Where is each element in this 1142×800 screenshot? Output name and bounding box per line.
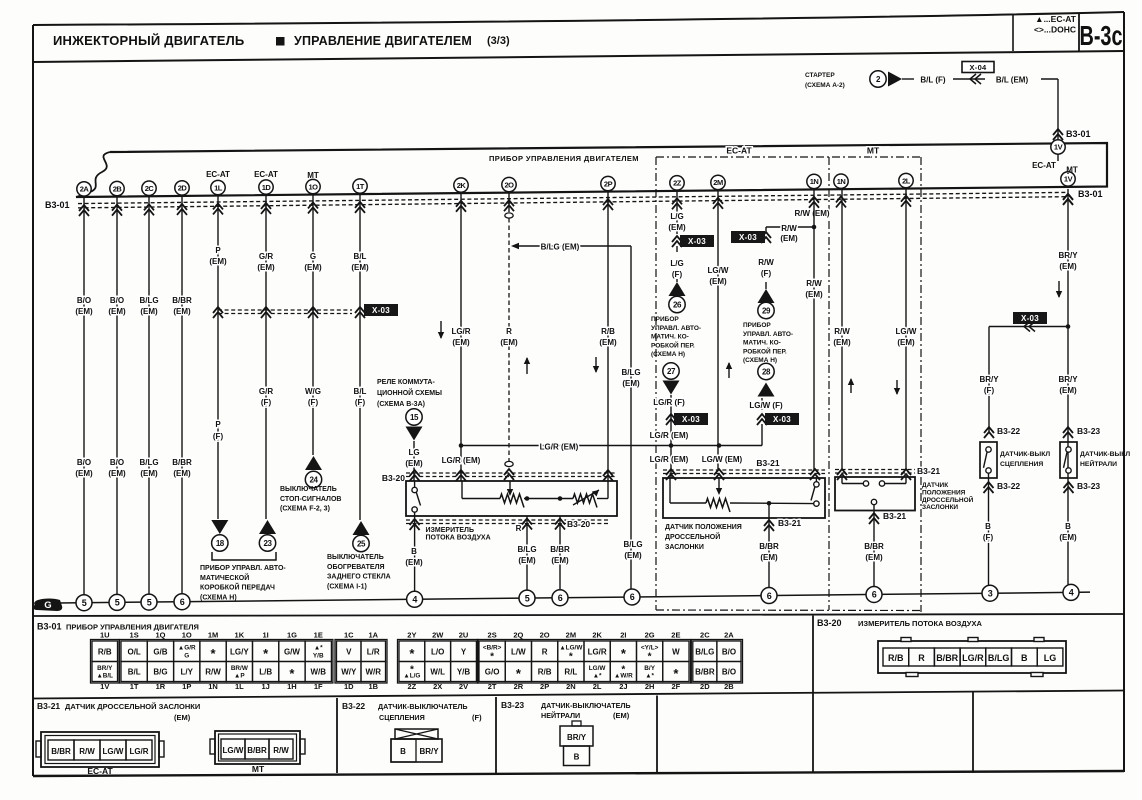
svg-text:R/B: R/B (98, 647, 112, 656)
svg-text:B3-21: B3-21 (917, 466, 940, 476)
svg-text:B/LG: B/LG (139, 458, 158, 467)
svg-text:(EM): (EM) (518, 556, 536, 565)
svg-text:2O: 2O (540, 631, 550, 640)
svg-text:(EM): (EM) (833, 338, 851, 347)
svg-text:2A: 2A (724, 631, 734, 640)
svg-text:G/W: G/W (284, 647, 300, 656)
svg-text:B/LG: B/LG (988, 653, 1010, 663)
svg-text:L/Y: L/Y (181, 668, 194, 677)
svg-text:LG/R (EM): LG/R (EM) (650, 431, 689, 440)
svg-text:1V: 1V (1064, 175, 1073, 184)
svg-text:LG/R (EM): LG/R (EM) (650, 455, 689, 464)
svg-text:R/W: R/W (758, 258, 774, 267)
svg-text:W/R: W/R (365, 668, 381, 677)
svg-text:B3-21: B3-21 (756, 458, 779, 468)
svg-text:R/B: R/B (538, 668, 552, 677)
svg-text:B/LG (EM): B/LG (EM) (541, 243, 580, 252)
svg-text:МАТИЧЕСКОЙ: МАТИЧЕСКОЙ (200, 573, 249, 582)
svg-text:2Q: 2Q (513, 631, 523, 640)
svg-text:R/L: R/L (564, 668, 577, 677)
svg-text:B/O: B/O (77, 296, 91, 305)
svg-text:ПОЛОЖЕНИЯ: ПОЛОЖЕНИЯ (922, 489, 966, 496)
svg-text:R/W: R/W (205, 668, 221, 677)
svg-text:BR/Y: BR/Y (567, 733, 587, 742)
svg-text:2U: 2U (459, 631, 469, 640)
svg-text:BR/Y: BR/Y (97, 665, 113, 672)
svg-text:2Z: 2Z (673, 179, 682, 188)
svg-text:УПРАВЛЕНИЕ ДВИГАТЕЛЕМ: УПРАВЛЕНИЕ ДВИГАТЕЛЕМ (294, 34, 472, 48)
svg-text:1C: 1C (344, 631, 354, 640)
svg-text:B/Y: B/Y (644, 665, 655, 672)
svg-text:LG/R: LG/R (129, 747, 148, 756)
svg-text:B: B (985, 522, 991, 531)
svg-text:EC-AT: EC-AT (206, 170, 230, 179)
svg-text:B3-22: B3-22 (997, 481, 1020, 491)
svg-text:*: * (569, 651, 573, 662)
svg-text:УПРАВЛ. АВТО-: УПРАВЛ. АВТО- (743, 331, 793, 338)
svg-text:B/G: B/G (153, 668, 167, 677)
svg-text:L/G: L/G (670, 212, 683, 221)
svg-text:B3-23: B3-23 (501, 700, 524, 710)
svg-text:G/R: G/R (259, 387, 273, 396)
svg-text:1D: 1D (262, 183, 272, 192)
svg-text:(EM): (EM) (257, 263, 275, 272)
svg-text:B/L: B/L (128, 668, 141, 677)
svg-text:(EM): (EM) (760, 553, 778, 562)
svg-text:РЕЛЕ КОММУТА-: РЕЛЕ КОММУТА- (377, 379, 435, 386)
svg-text:B/LG: B/LG (517, 545, 536, 554)
svg-text:ВЫКЛЮЧАТЕЛЬ: ВЫКЛЮЧАТЕЛЬ (280, 486, 337, 493)
svg-text:L/W: L/W (511, 647, 526, 656)
svg-text:СЦЕПЛЕНИЯ: СЦЕПЛЕНИЯ (379, 713, 425, 722)
svg-text:(EM): (EM) (405, 459, 423, 468)
svg-text:▲G/R: ▲G/R (178, 645, 196, 652)
svg-text:(EM): (EM) (668, 223, 686, 232)
svg-text:B/BR: B/BR (936, 653, 958, 663)
svg-text:2M: 2M (713, 178, 723, 187)
svg-text:2D: 2D (178, 184, 188, 193)
svg-text:BR/W: BR/W (231, 665, 249, 672)
svg-text:(EM): (EM) (140, 307, 158, 316)
svg-text:B3-01: B3-01 (37, 622, 62, 632)
svg-text:(EM): (EM) (622, 379, 640, 388)
svg-text:2P: 2P (604, 179, 613, 188)
svg-text:2C: 2C (700, 631, 710, 640)
svg-text:ДАТЧИК: ДАТЧИК (922, 482, 948, 489)
svg-text:R/B: R/B (601, 327, 615, 336)
svg-text:B3-23: B3-23 (1077, 426, 1100, 436)
svg-text:B: B (1021, 653, 1028, 663)
svg-text:▲W/R: ▲W/R (614, 673, 633, 680)
svg-text:X-03: X-03 (773, 415, 791, 424)
svg-text:LG/R (F): LG/R (F) (653, 398, 685, 407)
svg-text:B/BR: B/BR (51, 747, 71, 756)
svg-text:4: 4 (412, 595, 417, 605)
svg-text:R: R (506, 327, 512, 336)
svg-text:X-04: X-04 (969, 63, 987, 72)
svg-text:▲*: ▲* (593, 673, 602, 680)
svg-text:B/L: B/L (354, 252, 367, 261)
svg-text:B3-22: B3-22 (997, 426, 1020, 436)
svg-text:B3-01: B3-01 (1078, 189, 1103, 199)
svg-text:V: V (346, 647, 352, 656)
svg-text:(F): (F) (672, 270, 683, 279)
svg-text:(EM): (EM) (709, 277, 727, 286)
svg-text:<>...DOHC: <>...DOHC (1034, 25, 1076, 35)
svg-text:5: 5 (115, 598, 120, 608)
svg-text:R/W: R/W (806, 279, 822, 288)
svg-text:ИЗМЕРИТЕЛЬ ПОТОКА ВОЗДУХА: ИЗМЕРИТЕЛЬ ПОТОКА ВОЗДУХА (858, 619, 982, 628)
svg-text:(EM): (EM) (108, 469, 126, 478)
svg-text:27: 27 (667, 367, 676, 376)
svg-text:6: 6 (558, 593, 563, 603)
svg-text:(F): (F) (355, 398, 366, 407)
svg-text:LG/R: LG/R (451, 327, 470, 336)
svg-text:R/W: R/W (79, 747, 95, 756)
svg-text:G: G (310, 252, 316, 261)
svg-text:6: 6 (872, 590, 877, 600)
svg-text:УПРАВЛ. АВТО-: УПРАВЛ. АВТО- (651, 325, 701, 332)
svg-text:(EM): (EM) (1059, 386, 1077, 395)
svg-text:B/BR: B/BR (172, 458, 192, 467)
svg-text:(EM): (EM) (805, 290, 823, 299)
svg-text:1L: 1L (214, 183, 223, 192)
svg-text:ПОТОКА ВОЗДУХА: ПОТОКА ВОЗДУХА (426, 535, 491, 542)
svg-text:1I: 1I (263, 631, 269, 640)
svg-text:R: R (918, 653, 925, 663)
svg-text:B/L (EM): B/L (EM) (996, 76, 1029, 85)
svg-text:LG: LG (1044, 653, 1057, 663)
svg-text:MT: MT (307, 171, 319, 180)
svg-text:R/W: R/W (781, 224, 797, 233)
svg-text:(EM): (EM) (75, 469, 93, 478)
svg-text:LG/W: LG/W (708, 266, 729, 275)
svg-text:ОБОГРЕВАТЕЛЯ: ОБОГРЕВАТЕЛЯ (327, 564, 385, 571)
svg-text:2I: 2I (620, 631, 626, 640)
svg-text:B/O: B/O (110, 296, 124, 305)
svg-text:6: 6 (630, 592, 635, 602)
svg-text:(F): (F) (308, 398, 319, 407)
svg-text:ИНЖЕКТОРНЫЙ ДВИГАТЕЛЬ: ИНЖЕКТОРНЫЙ ДВИГАТЕЛЬ (53, 33, 244, 48)
svg-text:B/O: B/O (722, 647, 736, 656)
svg-text:B/BR: B/BR (695, 668, 715, 677)
svg-text:2C: 2C (145, 184, 155, 193)
svg-text:2K: 2K (592, 631, 602, 640)
svg-text:(F): (F) (472, 713, 482, 722)
svg-text:B/O: B/O (77, 458, 91, 467)
svg-text:B3-22: B3-22 (342, 701, 365, 711)
svg-text:(СХЕМА В-3А): (СХЕМА В-3А) (377, 401, 425, 408)
svg-text:G/R: G/R (259, 252, 273, 261)
svg-text:ЦИОННОЙ СХЕМЫ: ЦИОННОЙ СХЕМЫ (377, 388, 442, 397)
svg-text:23: 23 (264, 539, 273, 548)
svg-text:R/W: R/W (834, 327, 850, 336)
svg-text:(EM): (EM) (405, 558, 423, 567)
svg-text:B3-23: B3-23 (1077, 481, 1100, 491)
svg-text:B: B (574, 753, 580, 762)
svg-text:(F): (F) (761, 269, 772, 278)
svg-text:X-03: X-03 (372, 306, 390, 315)
svg-text:(EM): (EM) (351, 263, 369, 272)
svg-text:1G: 1G (287, 631, 297, 640)
svg-text:X-03: X-03 (739, 233, 757, 242)
svg-text:ЗАСЛОНКИ: ЗАСЛОНКИ (922, 504, 958, 511)
svg-text:P: P (215, 246, 221, 255)
svg-text:▲B/L: ▲B/L (96, 673, 113, 680)
svg-text:(EM): (EM) (780, 234, 798, 243)
svg-text:ДАТЧИК-ВЫКЛЮЧАТЕЛЬ: ДАТЧИК-ВЫКЛЮЧАТЕЛЬ (541, 701, 631, 710)
svg-text:*: * (490, 651, 494, 662)
svg-text:LG/R (EM): LG/R (EM) (442, 456, 481, 465)
svg-text:(F): (F) (261, 398, 272, 407)
svg-text:B3-01: B3-01 (1066, 129, 1091, 139)
svg-text:1K: 1K (235, 631, 245, 640)
svg-text:MT: MT (252, 764, 265, 774)
svg-text:LG/W: LG/W (896, 327, 917, 336)
svg-text:25: 25 (357, 539, 366, 548)
svg-text:(EM): (EM) (209, 257, 227, 266)
svg-text:1T: 1T (356, 182, 365, 191)
svg-text:B/BR: B/BR (172, 296, 192, 305)
svg-text:B3-21: B3-21 (883, 511, 906, 521)
svg-text:Y/B: Y/B (313, 652, 324, 659)
svg-text:R: R (516, 524, 522, 533)
svg-text:2A: 2A (80, 185, 90, 194)
svg-text:W/L: W/L (430, 668, 445, 677)
svg-text:5: 5 (82, 598, 87, 608)
svg-text:LG: LG (408, 448, 419, 457)
svg-text:G/O: G/O (485, 668, 500, 677)
svg-text:EC-AT: EC-AT (1032, 161, 1056, 170)
svg-text:28: 28 (762, 367, 771, 376)
svg-text:1M: 1M (208, 631, 218, 640)
svg-text:X-03: X-03 (682, 415, 700, 424)
svg-text:СЦЕПЛЕНИЯ: СЦЕПЛЕНИЯ (1000, 461, 1043, 468)
svg-text:(EM): (EM) (624, 551, 642, 560)
svg-text:B/BR: B/BR (759, 542, 779, 551)
svg-text:B/BR: B/BR (864, 542, 884, 551)
svg-text:18: 18 (216, 539, 225, 548)
svg-text:2W: 2W (432, 631, 444, 640)
svg-text:ИЗМЕРИТЕЛЬ: ИЗМЕРИТЕЛЬ (426, 527, 475, 534)
svg-text:(EM): (EM) (108, 307, 126, 316)
svg-text:R: R (542, 647, 548, 656)
svg-text:LG/R (EM): LG/R (EM) (540, 443, 579, 452)
svg-text:W/G: W/G (305, 387, 321, 396)
svg-text:(F): (F) (983, 533, 994, 542)
svg-text:(СХЕМА Н): (СХЕМА Н) (651, 351, 685, 358)
svg-text:G/B: G/B (153, 647, 167, 656)
svg-text:LG/W (EM): LG/W (EM) (702, 455, 743, 464)
svg-text:B/LG: B/LG (623, 540, 642, 549)
svg-text:(EM): (EM) (1059, 262, 1077, 271)
svg-text:ДРОССЕЛЬНОЙ: ДРОССЕЛЬНОЙ (665, 532, 720, 541)
svg-text:BR/Y: BR/Y (419, 747, 439, 756)
svg-text:LG/R: LG/R (962, 653, 984, 663)
svg-text:6: 6 (180, 597, 185, 607)
svg-text:▲*: ▲* (314, 645, 323, 652)
svg-text:ПРИБОР УПРАВЛ. АВТО-: ПРИБОР УПРАВЛ. АВТО- (200, 565, 286, 572)
svg-text:1N: 1N (810, 177, 819, 186)
svg-text:РОБКОЙ ПЕР.: РОБКОЙ ПЕР. (651, 340, 695, 349)
svg-text:6: 6 (767, 591, 772, 601)
svg-text:(EM): (EM) (75, 307, 93, 316)
svg-text:МАТИЧ. КО-: МАТИЧ. КО- (743, 340, 781, 347)
svg-text:ПРИБОР: ПРИБОР (743, 322, 771, 329)
svg-text:2O: 2O (504, 180, 514, 189)
svg-text:ДАТЧИК ПОЛОЖЕНИЯ: ДАТЧИК ПОЛОЖЕНИЯ (665, 524, 742, 531)
svg-text:(EM): (EM) (304, 263, 322, 272)
svg-text:B: B (400, 747, 406, 756)
svg-text:EC-AT: EC-AT (87, 766, 113, 776)
svg-text:(EM): (EM) (173, 469, 191, 478)
svg-text:EC-AT: EC-AT (726, 146, 752, 156)
svg-text:(EM): (EM) (452, 338, 470, 347)
svg-text:4: 4 (1069, 588, 1074, 598)
svg-text:L/B: L/B (259, 668, 272, 677)
svg-text:BR/Y: BR/Y (1058, 375, 1078, 384)
svg-text:L/R: L/R (367, 647, 380, 656)
svg-text:15: 15 (410, 413, 419, 422)
svg-text:B3-20: B3-20 (567, 519, 590, 529)
svg-text:1V: 1V (1054, 143, 1063, 152)
svg-text:2Y: 2Y (407, 631, 416, 640)
svg-text:2B: 2B (113, 184, 123, 193)
svg-text:(EM): (EM) (1059, 533, 1077, 542)
svg-text:2K: 2K (457, 181, 467, 190)
svg-text:G: G (44, 600, 51, 611)
svg-text:(3/3): (3/3) (487, 35, 510, 47)
svg-text:LG/W: LG/W (589, 665, 607, 672)
svg-text:L/G: L/G (670, 259, 683, 268)
svg-text:B3-21: B3-21 (37, 701, 60, 711)
svg-text:26: 26 (673, 300, 682, 309)
svg-text:(EM): (EM) (897, 338, 915, 347)
svg-text:B/O: B/O (110, 458, 124, 467)
svg-text:(EM): (EM) (613, 711, 630, 720)
svg-text:(EM): (EM) (599, 338, 617, 347)
svg-text:B3-21: B3-21 (778, 518, 801, 528)
svg-text:2E: 2E (671, 631, 680, 640)
svg-text:1N: 1N (837, 177, 846, 186)
svg-text:B-3c: B-3c (1080, 20, 1123, 51)
svg-text:5: 5 (147, 597, 152, 607)
svg-text:1A: 1A (368, 631, 378, 640)
svg-text:24: 24 (310, 475, 319, 484)
svg-text:B: B (1065, 522, 1071, 531)
svg-text:1U: 1U (100, 631, 110, 640)
svg-text:(EM): (EM) (173, 307, 191, 316)
svg-text:B/BR: B/BR (247, 746, 267, 755)
svg-text:НЕЙТРАЛИ: НЕЙТРАЛИ (541, 711, 580, 720)
svg-text:B/BR: B/BR (550, 545, 570, 554)
svg-text:L/O: L/O (431, 647, 444, 656)
svg-text:O/L: O/L (127, 647, 140, 656)
svg-text:1E: 1E (314, 631, 323, 640)
svg-text:Y: Y (461, 647, 467, 656)
svg-text:ДАТЧИК ДРОССЕЛЬНОЙ ЗАСЛОНКИ: ДАТЧИК ДРОССЕЛЬНОЙ ЗАСЛОНКИ (65, 702, 200, 711)
svg-text:BR/Y: BR/Y (1058, 251, 1078, 260)
svg-text:BR/Y: BR/Y (979, 375, 999, 384)
svg-text:(EM): (EM) (500, 338, 518, 347)
svg-text:2M: 2M (566, 631, 576, 640)
svg-text:▲*: ▲* (645, 673, 654, 680)
svg-text:B3-20: B3-20 (382, 473, 405, 483)
svg-text:1O: 1O (308, 182, 318, 191)
svg-text:LG/W (F): LG/W (F) (749, 401, 783, 410)
svg-text:ДАТЧИК-ВЫКЛЮЧАТЕЛЬ: ДАТЧИК-ВЫКЛЮЧАТЕЛЬ (378, 702, 468, 711)
svg-text:(EM): (EM) (174, 713, 191, 722)
svg-text:(СХЕМА Н): (СХЕМА Н) (743, 357, 777, 364)
svg-text:29: 29 (762, 306, 771, 315)
svg-text:EC-AT: EC-AT (254, 170, 278, 179)
svg-text:(F): (F) (213, 432, 224, 441)
svg-text:B3-20: B3-20 (817, 618, 842, 628)
svg-text:W/Y: W/Y (341, 668, 357, 677)
svg-text:▲P: ▲P (234, 673, 245, 680)
svg-text:R/W: R/W (273, 746, 289, 755)
svg-text:(F): (F) (984, 386, 995, 395)
svg-text:СТАРТЕР: СТАРТЕР (805, 72, 835, 79)
svg-text:1Q: 1Q (155, 631, 165, 640)
svg-text:1O: 1O (182, 631, 192, 640)
svg-text:B/O: B/O (722, 668, 736, 677)
svg-text:СТОП-СИГНАЛОВ: СТОП-СИГНАЛОВ (280, 496, 341, 503)
svg-text:W: W (672, 647, 680, 656)
svg-text:*: * (648, 651, 652, 662)
svg-text:G: G (184, 652, 189, 659)
svg-text:ЗАСЛОНКИ: ЗАСЛОНКИ (665, 544, 704, 551)
svg-text:B/LG: B/LG (695, 647, 714, 656)
svg-text:P: P (215, 420, 221, 429)
svg-text:(СХЕМА I-1): (СХЕМА I-1) (327, 583, 367, 590)
svg-text:R/B: R/B (888, 653, 904, 663)
svg-text:B/LG: B/LG (621, 368, 640, 377)
svg-text:МАТИЧ. КО-: МАТИЧ. КО- (651, 334, 689, 341)
svg-text:Y/B: Y/B (457, 668, 471, 677)
svg-text:(EM): (EM) (551, 556, 569, 565)
svg-text:▲...EC-AT: ▲...EC-AT (1035, 14, 1077, 24)
svg-text:ПРИБОР УПРАВЛЕНИЯ ДВИГАТЕЛЕМ: ПРИБОР УПРАВЛЕНИЯ ДВИГАТЕЛЕМ (489, 154, 639, 163)
svg-text:2L: 2L (902, 176, 911, 185)
svg-text:1S: 1S (130, 631, 139, 640)
svg-text:MT: MT (867, 146, 880, 156)
svg-text:ДРОССЕЛЬНОЙ: ДРОССЕЛЬНОЙ (922, 495, 974, 504)
svg-text:(EM): (EM) (140, 469, 158, 478)
svg-text:LG/W: LG/W (223, 746, 244, 755)
svg-text:2G: 2G (645, 631, 655, 640)
svg-text:ДАТЧИК-ВЫКЛ: ДАТЧИК-ВЫКЛ (1080, 451, 1130, 458)
svg-text:РОБКОЙ ПЕР.: РОБКОЙ ПЕР. (743, 346, 787, 355)
svg-text:X-03: X-03 (688, 237, 706, 246)
svg-text:(СХЕМА Н): (СХЕМА Н) (200, 594, 237, 601)
svg-text:КОРОБКОЙ ПЕРЕДАЧ: КОРОБКОЙ ПЕРЕДАЧ (200, 583, 275, 592)
svg-text:2S: 2S (488, 631, 497, 640)
svg-text:5: 5 (525, 593, 530, 603)
svg-text:(СХЕМА F-2, 3): (СХЕМА F-2, 3) (280, 506, 330, 513)
svg-text:B: B (411, 547, 417, 556)
svg-text:ЗАДНЕГО СТЕКЛА: ЗАДНЕГО СТЕКЛА (327, 574, 391, 581)
svg-text:3: 3 (988, 588, 993, 598)
svg-text:B/L: B/L (354, 387, 367, 396)
svg-text:B3-01: B3-01 (45, 200, 70, 210)
svg-text:(СХЕМА А-2): (СХЕМА А-2) (805, 82, 845, 89)
svg-text:R/W (EM): R/W (EM) (794, 209, 829, 218)
svg-text:LG/W: LG/W (103, 747, 124, 756)
svg-text:W/B: W/B (310, 668, 326, 677)
svg-text:LG/R: LG/R (588, 647, 607, 656)
svg-text:B/LG: B/LG (139, 296, 158, 305)
